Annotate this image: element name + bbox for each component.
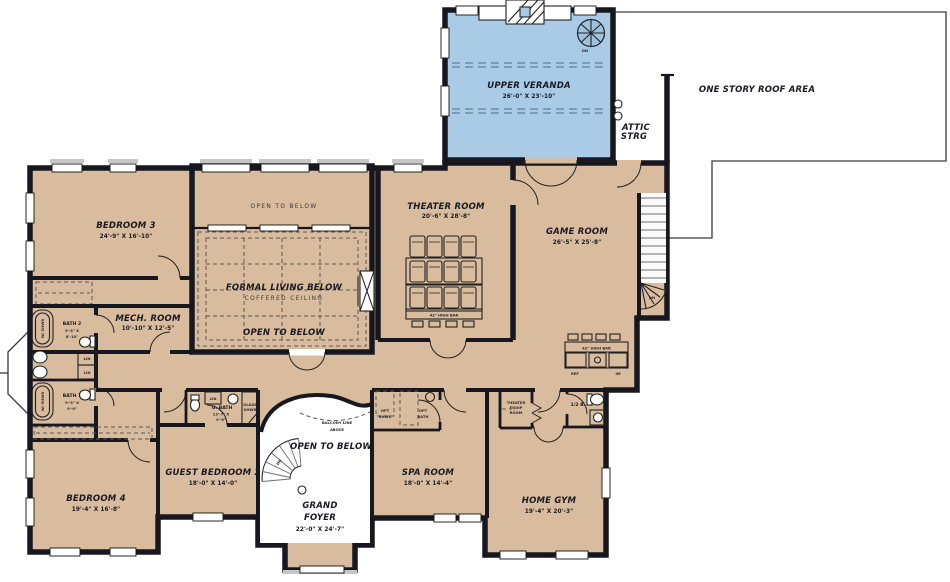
game-dims: 26'-5" X 25'-8" — [553, 240, 602, 246]
opt-shwr-1: OPT — [381, 409, 390, 413]
bath2-d2: 8'-10" — [66, 335, 78, 339]
lin-label-3: LIN — [210, 397, 217, 401]
game-label: GAME ROOM — [546, 227, 608, 237]
balcony-label-2: ABOVE — [330, 428, 345, 432]
roof-area-label: ONE STORY ROOF AREA — [699, 85, 815, 95]
gbath-sink — [228, 394, 238, 404]
bath2-sink — [33, 351, 47, 363]
open-below-top-label: OPEN TO BELOW — [250, 204, 317, 210]
game-bar-ref: REF — [571, 372, 579, 376]
coffered-label: COFFERED CEILING — [245, 296, 324, 302]
balcony-door-opening — [289, 349, 325, 356]
theater-label: THEATER ROOM — [407, 202, 485, 212]
gbath-label: G. BATH — [212, 405, 233, 411]
veranda-fireplace — [479, 0, 571, 24]
game-stairs-dn: DN — [649, 296, 655, 300]
bath2-tub-label: W/ SHWR — [41, 319, 45, 339]
bath1-toilet — [80, 389, 96, 400]
gym-dims: 19'-4" X 20'-3" — [525, 509, 574, 515]
gbath-d2: 9'-0" — [216, 418, 226, 422]
theater-bar-label: 42" HIGH BAR — [430, 314, 459, 318]
opt-bath-2: BATH — [418, 415, 429, 419]
lin-label-2: LIN — [84, 371, 91, 375]
bath1-tub-label: W/ SHWR — [41, 392, 45, 412]
bath2-toilet — [80, 336, 96, 347]
spa-label: SPA ROOM — [402, 468, 455, 478]
half-bath-label: 1/2 B. — [571, 402, 586, 408]
formal-fireplace — [358, 271, 374, 311]
foyer-label-2: FOYER — [304, 513, 336, 523]
bedroom4-label: BEDROOM 4 — [66, 494, 125, 504]
theater-dims: 20'-6" X 28'-8" — [422, 214, 471, 220]
foyer-label-1: GRAND — [302, 501, 337, 511]
bath2-label: BATH 2 — [63, 321, 81, 327]
gym-label: HOME GYM — [522, 496, 577, 506]
bedroom3-dims: 24'-9" X 16'-10" — [100, 234, 153, 240]
open-below-foyer-label: OPEN TO BELOW — [290, 442, 372, 452]
glass-shwr-1: GLASS — [243, 403, 257, 407]
bath1-sink — [33, 366, 47, 378]
catwalk-rail — [194, 225, 370, 231]
opt-shwr-2: SHWR — [379, 415, 392, 419]
lin-label-1: LIN — [84, 357, 91, 361]
gbath-toilet — [191, 395, 200, 411]
room-bedroom4: BEDROOM 4 19'-4" X 16'-8" — [66, 494, 125, 513]
bath1-d1: 9'-3" X — [65, 401, 79, 405]
guest-bedroom-label: GUEST BEDROOM 2 — [165, 468, 260, 478]
balcony-label-1: BALCONY LINE — [322, 421, 353, 425]
floor-plan-drawing: ONE STORY ROOF AREA UPPER VERANDA 26'-0"… — [0, 0, 950, 582]
game-bar-label: 42" HIGH BAR — [582, 347, 611, 351]
bath1-label: BATH 1 — [63, 393, 81, 399]
bath1-d2: 9'-0" — [67, 407, 77, 411]
guest-bedroom-dims: 18'-0" X 14'-0" — [189, 481, 238, 487]
spa-dims: 18'-0" X 14'-4" — [404, 481, 453, 487]
mech-label: MECH. ROOM — [115, 314, 181, 324]
formal-living-label: FORMAL LIVING BELOW — [226, 283, 343, 293]
veranda-door-opening — [525, 157, 577, 164]
open-below-mid-label: OPEN TO BELOW — [243, 328, 325, 338]
bedroom3-label: BEDROOM 3 — [96, 221, 155, 231]
foyer-dims: 22'-0" X 24'-7" — [296, 527, 345, 533]
equip-label-3: ROOM — [510, 411, 523, 415]
attic-door-opening — [617, 160, 641, 167]
veranda-dims: 26'-0" X 23'-10" — [503, 94, 556, 100]
veranda-label: UPPER VERANDA — [487, 81, 571, 91]
opt-bath-1: OPT — [419, 409, 428, 413]
mech-dims: 10'-10" X 12'-5" — [122, 326, 175, 332]
floor-plan-page: ONE STORY ROOF AREA UPPER VERANDA 26'-0"… — [0, 0, 950, 582]
left-bay-outline — [0, 330, 30, 416]
game-bar-im: IM — [615, 372, 620, 376]
bath2-d1: 9'-3" X — [65, 329, 79, 333]
attic-label-2: STRG — [621, 132, 647, 142]
glass-shwr-2: SHWR — [244, 408, 257, 412]
equip-label-1: THEATER — [507, 401, 526, 405]
room-upper-veranda: UPPER VERANDA 26'-0" X 23'-10" DN — [441, 0, 613, 164]
half-bath-toilet — [587, 394, 604, 405]
bedroom4-dims: 19'-4" X 16'-8" — [72, 507, 121, 513]
veranda-stair-dn: DN — [582, 49, 588, 53]
gbath-d1: 13'-7" X — [213, 413, 230, 417]
